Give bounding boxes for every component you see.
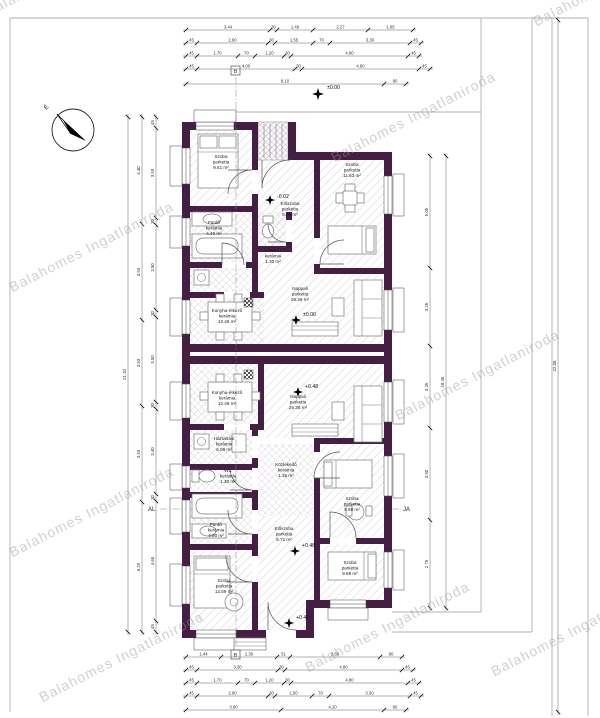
- dimension-value: 2.90: [228, 690, 237, 695]
- dimension-value: 70: [244, 677, 249, 682]
- dimension-chain-left-2: 4.403.933.533.935.29: [136, 114, 144, 635]
- dimension-value: 30: [296, 63, 301, 68]
- dimension-value: 45: [422, 63, 427, 68]
- dimension-value: 3.90: [424, 469, 429, 478]
- dimension-chain-bottom-1: 1.442.30513.6990: [183, 651, 405, 659]
- bed: [328, 226, 376, 254]
- dimension-value: 51: [281, 651, 286, 656]
- dimension-value: 2.90: [228, 37, 237, 42]
- dimension-chain-top-1: 3.44301.492.271.85: [183, 24, 416, 32]
- dimension-value: 45: [189, 63, 194, 68]
- dimension-value: 3.45: [424, 382, 429, 391]
- dimension-value: 21.10: [122, 369, 127, 380]
- elevation-entry-lower: +0.46: [296, 615, 309, 621]
- dimension-value: 45: [189, 677, 194, 682]
- coffee-table: [332, 402, 344, 420]
- dimension-value: 1.20: [265, 50, 274, 55]
- dimension-value: 3.30: [366, 37, 375, 42]
- party-wall: [182, 344, 392, 352]
- dimension-value: 30: [279, 664, 284, 669]
- floor-plan-drawing: É: [0, 0, 600, 718]
- entry-porch-upper: [258, 122, 288, 160]
- dimension-value: 4.80: [345, 677, 354, 682]
- rug: [292, 322, 338, 336]
- window: [170, 464, 190, 490]
- elevation-site: ±0.00: [327, 85, 340, 91]
- dimension-value: 90: [389, 651, 394, 656]
- dimension-value: 5.29: [136, 562, 141, 571]
- room-label-szoba-upper-left: Szobaparketta9.61 m²: [213, 154, 230, 170]
- dimension-chain-bottom-3: 451.70701.20304.8045: [183, 677, 422, 685]
- north-label: É: [43, 104, 51, 112]
- dimension-value: 45: [189, 50, 194, 55]
- window: [384, 174, 404, 216]
- dimension-value: 30: [285, 677, 290, 682]
- dimension-value: 1.44: [199, 651, 208, 656]
- window: [384, 454, 404, 498]
- dimension-value: 4.40: [136, 166, 141, 175]
- dimension-value: 70: [319, 37, 324, 42]
- room-label-haztartasi: Háztartásikerámia6.09 m²: [214, 436, 235, 452]
- dimension-value: 45: [189, 690, 194, 695]
- stove: [244, 298, 253, 307]
- elevation-entry-upper: -0.02: [277, 194, 289, 200]
- marker-ja: JA: [403, 507, 410, 513]
- dimension-value: 30: [150, 219, 155, 224]
- dimension-value: 30: [269, 690, 274, 695]
- dimension-chain-top-2: 452.90301.55703.3045: [183, 37, 424, 45]
- marker-al: AL: [148, 507, 156, 513]
- dimension-chain-top-5: 8.1090: [183, 78, 409, 86]
- bed: [324, 460, 372, 488]
- stove: [244, 370, 253, 379]
- elevation-star: [312, 88, 324, 100]
- dimension-value: 45: [189, 664, 194, 669]
- dimension-value: 4.20: [328, 704, 337, 709]
- window: [170, 498, 190, 534]
- dimension-value: 70: [244, 50, 249, 55]
- dimension-value: 30: [150, 495, 155, 500]
- dimension-value: 45: [413, 37, 418, 42]
- dimension-value: 4.80: [345, 50, 354, 55]
- dimension-value: 3.93: [150, 168, 155, 177]
- dimension-value: 3.53: [136, 358, 141, 367]
- dimension-value: 3.30: [365, 690, 374, 695]
- dimension-value: 3.40: [150, 447, 155, 456]
- dimension-chain-right-3: 22.08: [552, 17, 560, 715]
- dimension-value: 4.00: [242, 63, 251, 68]
- room-label-nappali-lower: Nappaliparketta26.36 m²: [289, 394, 308, 410]
- sofa: [354, 280, 382, 336]
- dimension-value: 22.08: [552, 360, 557, 371]
- party-wall: [182, 356, 392, 364]
- dimension-value: 2.30: [245, 651, 254, 656]
- dimension-value: 18.45: [440, 376, 445, 387]
- dimension-value: 3.50: [150, 263, 155, 272]
- entry-steps: [234, 638, 266, 650]
- window: [194, 630, 238, 650]
- dimension-value: 45: [411, 50, 416, 55]
- dimension-chain-top-4: 454.00304.8045: [183, 63, 433, 71]
- dimension-value: 45: [413, 690, 418, 695]
- dimension-value: 3.25: [424, 302, 429, 311]
- dimension-value: 1.85: [386, 24, 395, 29]
- window: [170, 146, 190, 186]
- toilet: [192, 470, 215, 482]
- dimension-value: 3.93: [136, 449, 141, 458]
- dimension-value: 2.27: [336, 24, 345, 29]
- dimension-value: 2.75: [424, 559, 429, 568]
- dimension-value: 45: [150, 624, 155, 629]
- dimension-chain-right-1: 5.053.253.453.902.75: [424, 153, 432, 611]
- dimension-chain-right-2: 18.45: [440, 153, 448, 611]
- room-label-szoba-lower-mid: Szobaparketta9.68 m²: [344, 496, 361, 512]
- dimension-value: 30: [271, 24, 276, 29]
- dimension-value: 45: [189, 37, 194, 42]
- dimension-chain-bottom-2: 453.30304.8045: [183, 664, 416, 672]
- window: [384, 288, 404, 332]
- window: [384, 380, 404, 424]
- window: [170, 382, 190, 420]
- dimension-value: 1.55: [290, 37, 299, 42]
- dimension-value: 30: [269, 37, 274, 42]
- elevation-nappali-upper: ±0.00: [303, 312, 316, 318]
- dimension-value: 1.70: [213, 677, 222, 682]
- dimension-chain-left-1: 21.10: [122, 114, 130, 635]
- dimension-value: 1.70: [213, 50, 222, 55]
- coffee-table: [332, 298, 344, 316]
- window: [170, 216, 190, 248]
- window: [170, 564, 190, 606]
- rug: [292, 424, 338, 436]
- floor-plan-page: Balahomes Ingatlaniroda Balahomes Ingatl…: [0, 0, 600, 718]
- dimension-value: 3.93: [136, 267, 141, 276]
- room-label-nappali-upper: Nappaliparketta26.36 m²: [291, 286, 310, 302]
- dimension-value: 4.80: [339, 664, 348, 669]
- washing-machine: [194, 270, 209, 285]
- dimension-value: 4.65: [150, 556, 155, 565]
- dimension-chain-bottom-5: 3.904.2090: [183, 704, 409, 712]
- bathtub: [192, 494, 242, 518]
- elevation-nappali-lower: +0.48: [305, 384, 318, 390]
- dimension-value: 45: [150, 120, 155, 125]
- dimension-value: 1.50: [289, 690, 298, 695]
- dimension-value: 3.44: [224, 24, 233, 29]
- dimension-value: 3.30: [233, 664, 242, 669]
- room-label-eloszoba-lower: Előszobaparketta5.71 m²: [275, 526, 294, 542]
- dimension-value: 3.90: [229, 704, 238, 709]
- dimension-value: 5.05: [424, 207, 429, 216]
- dimension-chain-bottom-4: 452.90301.50703.3045: [183, 690, 424, 698]
- sofa: [354, 386, 382, 442]
- window: [328, 600, 368, 620]
- dimension-value: 90: [393, 78, 398, 83]
- dimension-value: 70: [318, 690, 323, 695]
- dimension-value: 1.20: [265, 677, 274, 682]
- window: [194, 110, 236, 130]
- dimension-value: 8.10: [281, 78, 290, 83]
- room-label-szoba-lower-right: Szobaparketta9.69 m²: [342, 560, 359, 576]
- dimension-value: 3.50: [150, 355, 155, 364]
- round-table: [225, 593, 243, 611]
- dimension-chain-top-3: 451.70701.20304.8045: [183, 50, 422, 58]
- dimension-value: 45: [411, 677, 416, 682]
- dimension-value: 1.49: [291, 24, 300, 29]
- bathtub: [192, 234, 242, 258]
- window: [170, 298, 190, 336]
- dimension-value: 30: [150, 311, 155, 316]
- dimension-value: 90: [393, 704, 398, 709]
- window: [384, 550, 404, 590]
- dimension-value: 30: [285, 50, 290, 55]
- room-label-eloszoba-upper: Előszobaparketta5.65 m²: [281, 201, 300, 217]
- dimension-value: 30: [150, 403, 155, 408]
- dimension-value: 45: [405, 664, 410, 669]
- north-compass: É: [43, 104, 94, 151]
- dimension-value: 4.80: [356, 63, 365, 68]
- washing-machine: [194, 434, 209, 449]
- dimension-chain-left-3: 453.93303.50303.50303.40304.6545: [150, 114, 158, 635]
- dimension-value: 3.69: [331, 651, 340, 656]
- elevation-eloszoba-lower: +0.48: [302, 543, 315, 549]
